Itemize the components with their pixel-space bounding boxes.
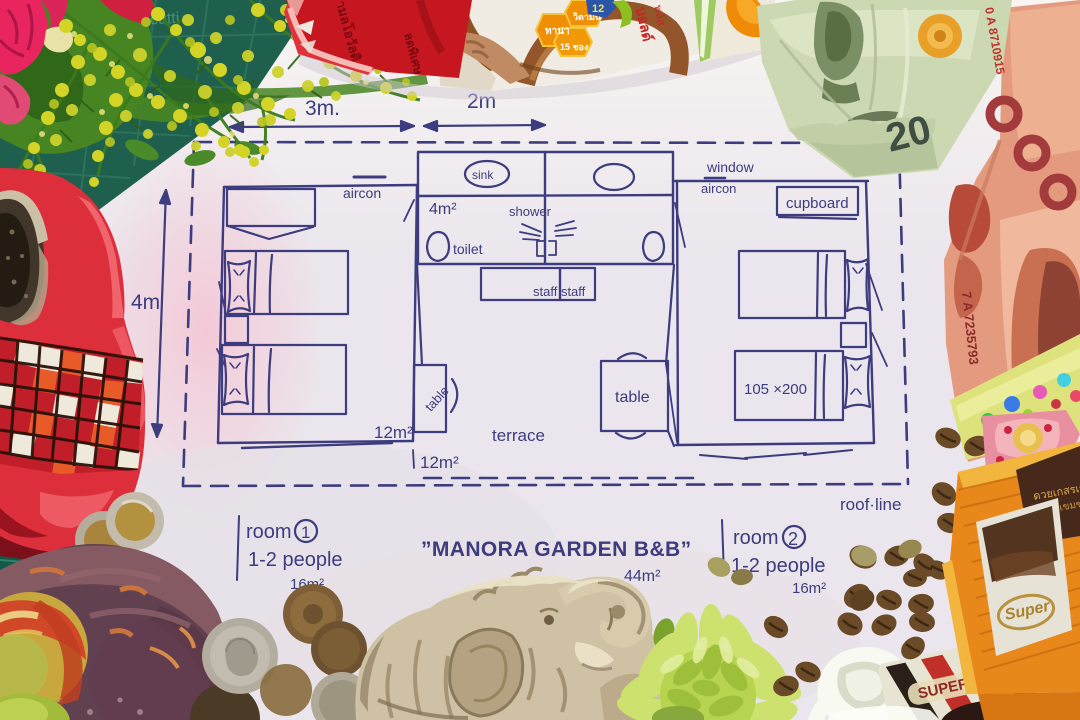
svg-text:16m²: 16m²	[792, 580, 826, 597]
svg-text:1-2 people: 1-2 people	[248, 549, 343, 571]
svg-text:shower: shower	[509, 204, 552, 219]
svg-text:15 ชอง: 15 ชอง	[560, 42, 588, 52]
svg-text:105 ×200: 105 ×200	[744, 381, 807, 398]
svg-text:”MANORA GARDEN B&B”: ”MANORA GARDEN B&B”	[421, 538, 691, 561]
svg-text:sink: sink	[472, 168, 494, 182]
svg-text:cupboard: cupboard	[786, 195, 849, 212]
svg-text:table: table	[615, 389, 650, 406]
svg-text:window: window	[706, 159, 755, 175]
svg-text:terrace: terrace	[492, 426, 545, 445]
svg-text:room: room	[246, 521, 292, 543]
svg-text:aircon: aircon	[701, 181, 736, 196]
svg-text:roof·line: roof·line	[840, 495, 901, 514]
svg-text:12: 12	[592, 3, 604, 15]
svg-text:12m²: 12m²	[420, 453, 459, 472]
svg-text:1: 1	[301, 523, 310, 542]
svg-text:4m²: 4m²	[429, 201, 457, 218]
svg-text:staff staff: staff staff	[533, 284, 586, 299]
svg-text:ทานา: ทานา	[545, 26, 570, 37]
svg-text:aircon: aircon	[343, 185, 381, 201]
svg-text:room: room	[733, 527, 779, 549]
svg-text:toilet: toilet	[453, 241, 483, 257]
svg-text:12m²: 12m²	[374, 423, 413, 442]
svg-text:44m²: 44m²	[624, 568, 661, 585]
svg-text:4m: 4m	[131, 291, 160, 314]
